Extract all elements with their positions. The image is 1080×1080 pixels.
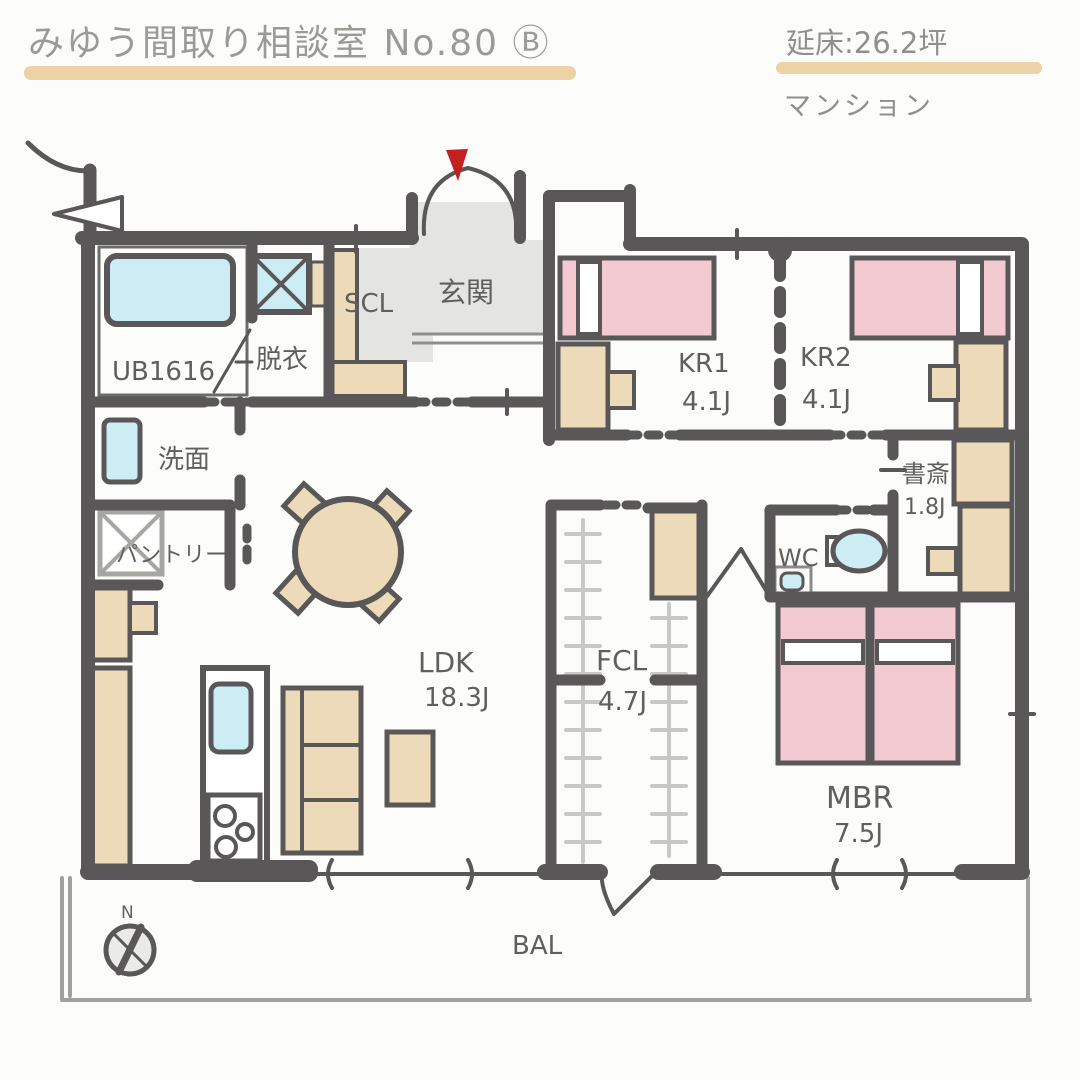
- kr1-desk: [558, 344, 634, 430]
- kr2-bed: [852, 258, 1008, 338]
- label-mbr-size: 7.5J: [834, 819, 883, 849]
- kr1-bed: [560, 258, 714, 338]
- label-kr1-size: 4.1J: [682, 387, 731, 417]
- compass-north-label: N: [121, 903, 134, 923]
- label-dressing: 脱衣: [256, 345, 308, 375]
- fcl-cabinet: [652, 510, 700, 598]
- label-ldk: LDK: [418, 646, 474, 679]
- label-wc: WC: [778, 544, 819, 572]
- label-study: 書斎: [902, 460, 950, 488]
- label-fcl: FCL: [596, 644, 648, 677]
- dining-table: [276, 484, 409, 621]
- compass-icon: N: [106, 903, 154, 974]
- label-kr2-size: 4.1J: [802, 385, 851, 415]
- label-scl: SCL: [344, 289, 394, 319]
- label-study-size: 1.8J: [904, 495, 945, 520]
- label-mbr: MBR: [826, 781, 893, 816]
- label-pantry: パントリー: [116, 543, 227, 568]
- label-balcony: BAL: [512, 931, 563, 961]
- label-washroom: 洗面: [158, 445, 210, 475]
- kitchen-sink: [211, 684, 251, 752]
- label-kr1: KR1: [678, 349, 730, 379]
- kr2-desk: [930, 342, 1006, 430]
- label-fcl-size: 4.7J: [598, 687, 647, 717]
- bathtub: [107, 256, 233, 324]
- floor-plan-svg: N UB1616 脱衣 SCL 玄関 洗面 パントリー LDK 18.3J FC…: [0, 0, 1080, 1080]
- label-entrance: 玄関: [438, 276, 494, 309]
- side-table: [387, 732, 433, 805]
- washstand-sink: [104, 420, 140, 482]
- mbr-beds: [778, 605, 958, 763]
- label-bath: UB1616: [112, 357, 215, 387]
- label-kr2: KR2: [800, 343, 852, 373]
- label-ldk-size: 18.3J: [424, 683, 490, 713]
- washing-machine-icon: [253, 256, 327, 312]
- wall-cabinets: [92, 588, 156, 866]
- sofa: [283, 688, 361, 853]
